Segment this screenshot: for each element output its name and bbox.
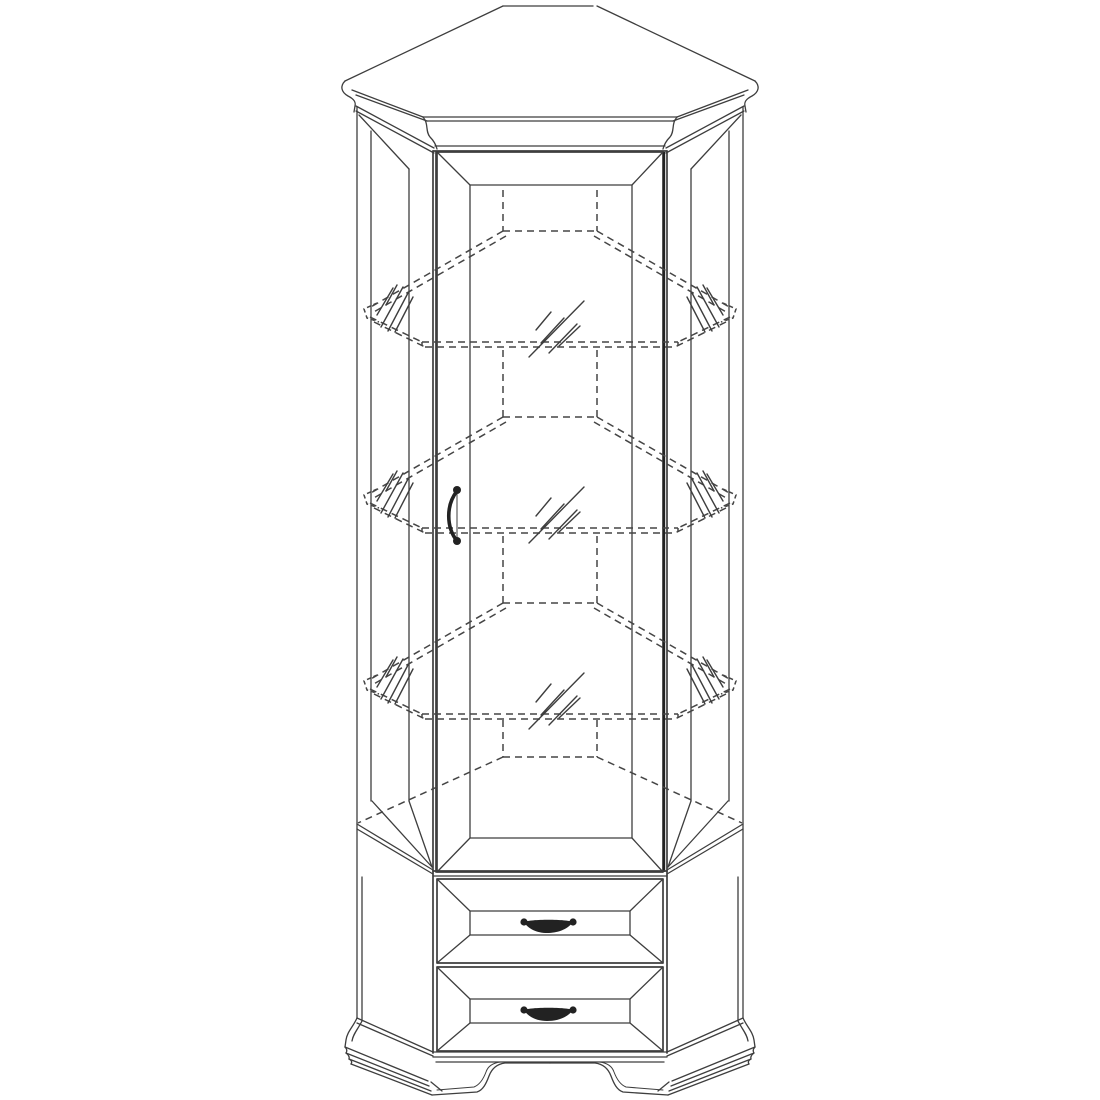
crown-tip-right (597, 6, 758, 149)
glass-shelf-2 (364, 417, 736, 543)
interior-hidden-lines (358, 190, 742, 823)
right-side-panel (666, 106, 744, 1056)
top-assembly (342, 6, 758, 151)
glass-shelf-3 (364, 603, 736, 729)
corner-cabinet-diagram (0, 0, 1100, 1100)
lower-section (433, 871, 667, 1051)
door-frame-miters (437, 152, 663, 872)
cabinet-floor-diagonals (358, 757, 742, 823)
glass-shelf-1 (364, 231, 736, 357)
base-assembly (345, 1018, 755, 1095)
glass-door (436, 152, 664, 872)
door-handle (449, 486, 461, 545)
drawer-bottom (437, 967, 663, 1051)
back-corner-posts (503, 190, 597, 757)
crown-tip-left (342, 6, 503, 149)
diagram-canvas (0, 0, 1100, 1100)
crown-molding (423, 117, 677, 151)
drawer-top (437, 879, 663, 963)
left-side-panel (356, 106, 434, 1056)
plinth-molding (433, 1052, 667, 1062)
door-glass-opening (470, 185, 632, 838)
door-outer-frame (437, 152, 663, 872)
